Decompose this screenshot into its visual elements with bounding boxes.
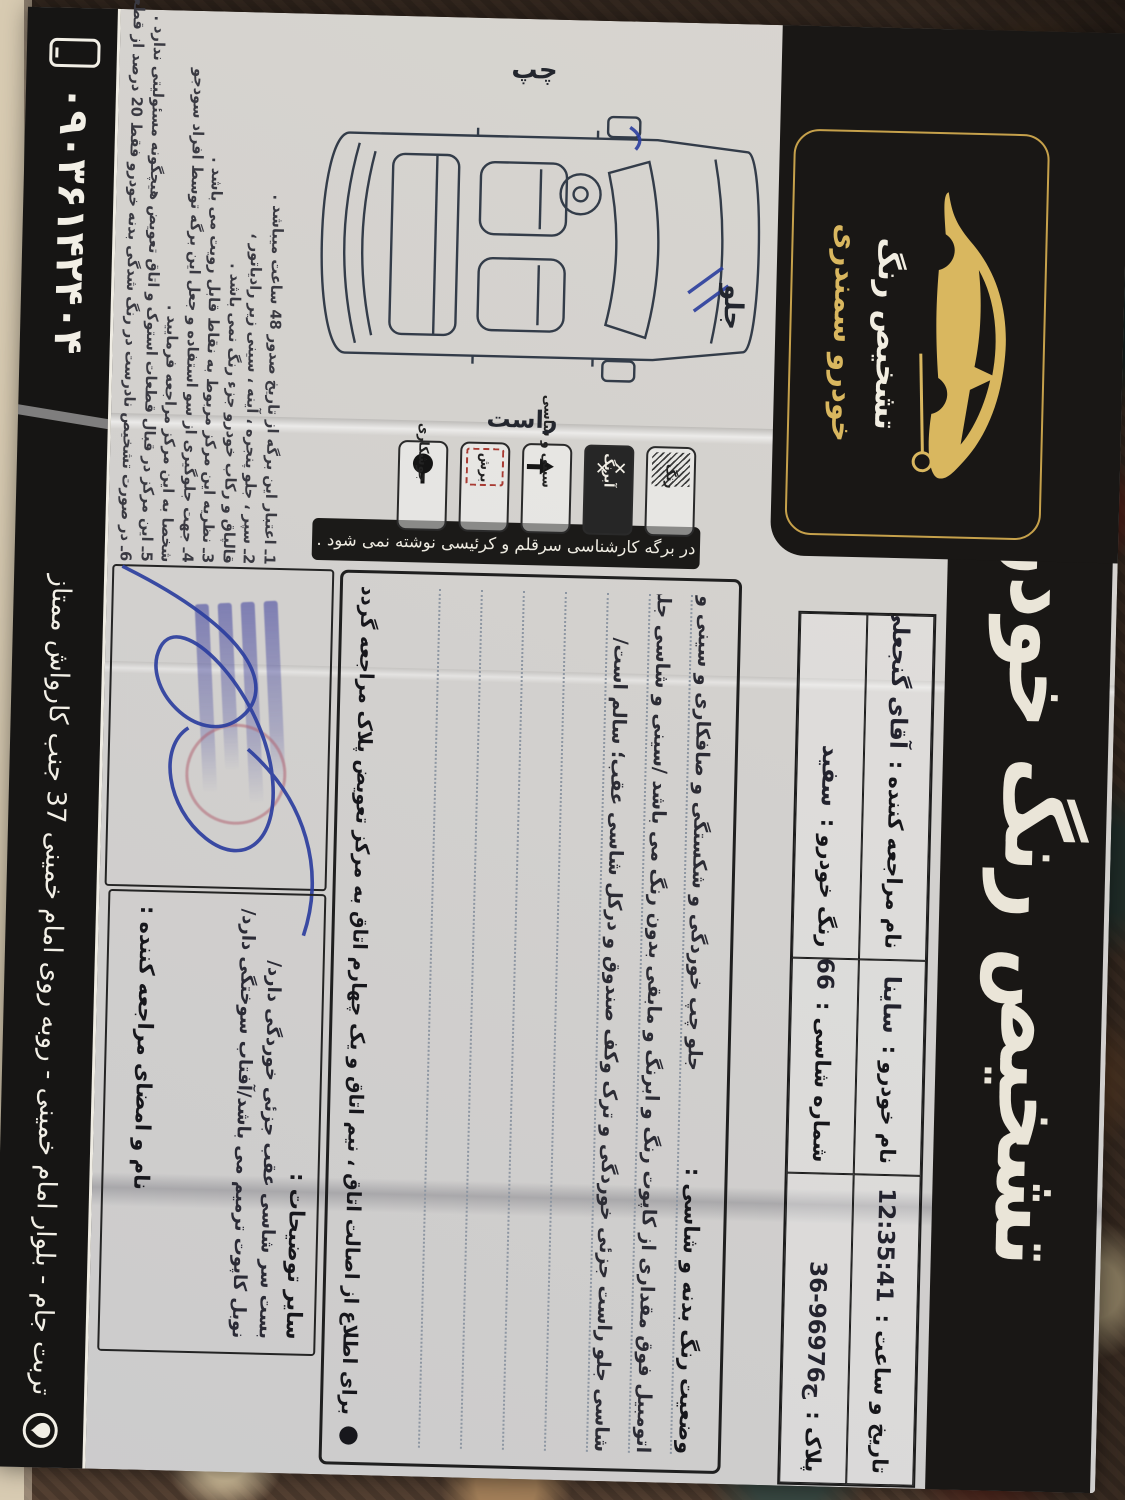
time-value: 12:35:41 — [871, 1188, 900, 1303]
findings-heading: وضعیت رنگ بدنه و شاسی : — [674, 1167, 705, 1454]
date-time-label: تاریخ و ساعت : — [868, 1314, 896, 1474]
address-text: تربت جام - بلوار امام خمینی - روبه روی ا… — [26, 574, 76, 1396]
car-topview-drawing — [289, 45, 780, 449]
findings-box: وضعیت رنگ بدنه و شاسی : جلو چپ خوردگی و … — [318, 570, 742, 1475]
logo-frame: تشخیص رنگ خودرو سمندری — [784, 128, 1050, 540]
diagram-left-label: چپ — [511, 55, 558, 86]
legend-label: رنگ — [662, 464, 679, 493]
conditions-notes: 1ـ اعتبار این برگه از تاریخ صدور 48 ساعت… — [115, 27, 292, 565]
chassis-cell: شماره شاسی : 751966 — [787, 958, 859, 1175]
color-label: رنگ خودرو : — [814, 819, 841, 948]
legend-label: آبرنگ — [600, 453, 617, 491]
legend-item-paint: رنگ — [644, 446, 696, 537]
phone-number: ۰۹۰۳۶۱۴۲۴۰۴ — [45, 85, 98, 355]
address-line: تربت جام - بلوار امام خمینی - روبه روی ا… — [19, 574, 82, 1452]
legend-label: برش — [476, 453, 493, 487]
color-cell: رنگ خودرو : سفید — [792, 613, 867, 960]
logo-block: تشخیص رنگ خودرو سمندری — [770, 25, 1125, 563]
legend-item-cut: برش — [458, 441, 510, 532]
date-time-cell: تاریخ و ساعت : 12:35:41 1404/08/12 — [846, 1174, 921, 1486]
diagram-right-label: راست — [486, 405, 558, 435]
plate-cell: پلاک : 36-969ج76 — [779, 1173, 854, 1485]
findings-gap — [681, 1071, 683, 1168]
logo-text-line1: تشخیص رنگ — [864, 132, 910, 535]
pen-marks — [626, 127, 732, 311]
color-value: سفید — [816, 745, 844, 807]
client-cell: نام مراجعه کننده : آقای گنجعلی — [859, 614, 934, 961]
logo-text-line2: خودرو سمندری — [822, 131, 866, 534]
phone-line: ۰۹۰۳۶۱۴۲۴۰۴ — [42, 37, 102, 355]
chassis-label: شماره شاسی : — [809, 1002, 837, 1163]
legend-item-chassis: سینی و شاسی — [520, 443, 572, 534]
band-crease — [18, 404, 108, 429]
remarks-heading: سایر توضیحات : — [282, 909, 316, 1339]
inspection-form-document: تشخیص رنگ خودرو سمندری تشخیص رنگ خودرو س… — [0, 7, 1125, 1493]
chassis-value: 751966 — [812, 958, 840, 991]
car-diagram: جلو چپ راست — [289, 45, 780, 449]
phone-icon — [49, 37, 102, 68]
bullet-icon: ● — [336, 1425, 365, 1447]
diagram-front-label: جلو — [717, 284, 748, 330]
client-value: آقای گنجعلی — [885, 614, 915, 749]
remarks-box: سایر توضیحات : بست سر شاسی عقب جزئی خورد… — [97, 889, 326, 1356]
expert-signature-box — [105, 564, 335, 891]
legend-item-weld: جوشکاری — [396, 440, 448, 531]
car-name-value: ساینا — [878, 975, 905, 1034]
client-label: نام مراجعه کننده : — [881, 761, 910, 950]
location-pin-icon — [19, 1409, 62, 1452]
car-name-cell: نام خودرو : ساینا — [854, 959, 926, 1176]
remarks-line-2: نوبل کاپوت ترمیم می باشد/آفتاب سوختگی دا… — [228, 908, 259, 1338]
client-signature-label: نام و امضای مراجعه کننده : — [129, 906, 160, 1191]
legend-column: رنگ ✕✕ آبرنگ سینی و شاسی برش جوشکاری — [384, 440, 696, 540]
vehicle-info-table: تاریخ و ساعت : 12:35:41 1404/08/12 نام خ… — [777, 611, 936, 1488]
plate-value: 36-969ج76 — [802, 1261, 831, 1400]
remarks-line-1: بست سر شاسی عقب جزئی خوردگی دارد/ — [255, 909, 286, 1339]
car-name-label: نام خودرو : — [875, 1045, 902, 1164]
car-logo-icon — [904, 173, 1037, 496]
legend-item-watercolor: ✕✕ آبرنگ — [582, 444, 634, 535]
plate-label: پلاک : — [801, 1411, 826, 1473]
